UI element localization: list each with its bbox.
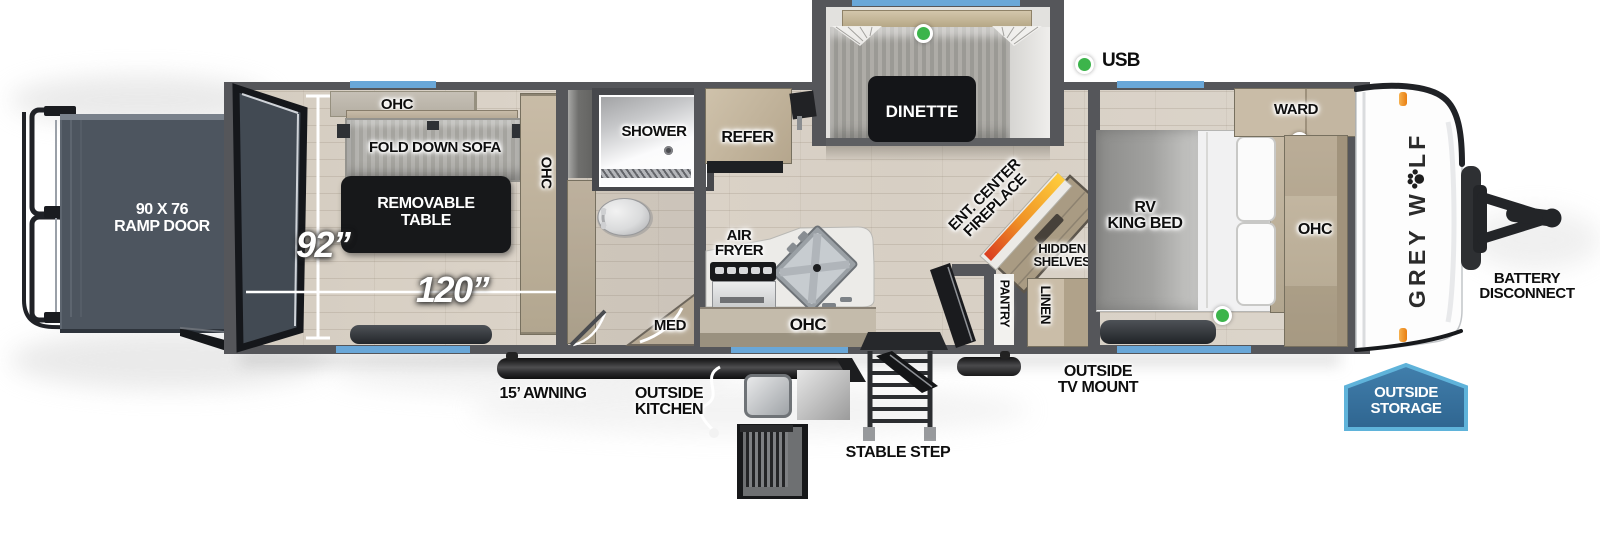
svg-text:LF: LF xyxy=(1404,132,1430,169)
svg-text:GREY W: GREY W xyxy=(1404,190,1430,308)
